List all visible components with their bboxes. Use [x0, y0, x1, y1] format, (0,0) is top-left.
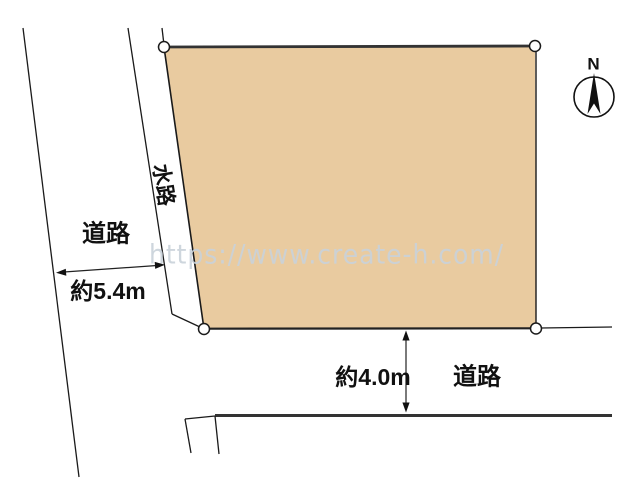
side-stub-left-edge — [185, 419, 191, 453]
waterway-label: 水路 — [148, 162, 178, 208]
side-stub-right-edge — [215, 416, 219, 454]
land-plot-diagram: https://www.create-h.com/ 道路 約5.4m 水路 約4… — [0, 0, 640, 480]
north-arrow: N — [574, 55, 614, 118]
dimension-line — [64, 266, 157, 273]
plot-diagram-canvas: https://www.create-h.com/ 道路 約5.4m 水路 約4… — [0, 0, 640, 480]
road-bottom-width-label: 約4.0m — [335, 364, 410, 390]
waterway-edge-bend — [172, 314, 201, 328]
arrowhead-down-icon — [402, 403, 409, 413]
arrowhead-left-icon — [56, 269, 66, 276]
watermark-text: https://www.create-h.com/ — [149, 240, 504, 271]
road-left-width-label: 約5.4m — [70, 278, 145, 304]
parcel-edge-top — [163, 46, 537, 47]
road-bottom-near-edge — [541, 327, 612, 328]
arrowhead-up-icon — [402, 331, 409, 341]
corner-marker-se — [531, 323, 542, 334]
north-label: N — [587, 55, 599, 74]
side-stub-top-edge — [185, 416, 215, 419]
road-bottom-label: 道路 — [453, 363, 502, 391]
corner-marker-sw — [199, 324, 210, 335]
corner-marker-nw — [159, 42, 170, 53]
road-left-outer-edge — [23, 28, 79, 477]
road-left-label: 道路 — [82, 220, 131, 248]
parcel-area — [164, 46, 536, 329]
corner-marker-ne — [530, 41, 541, 52]
